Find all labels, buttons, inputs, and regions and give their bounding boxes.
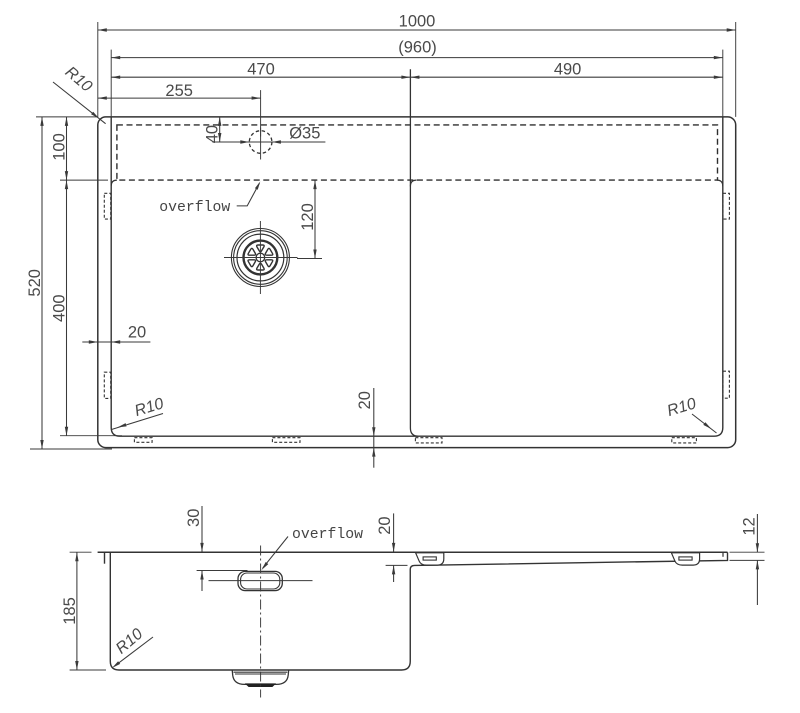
svg-text:400: 400 (51, 294, 69, 322)
svg-text:100: 100 (51, 133, 69, 161)
svg-text:12: 12 (741, 517, 759, 535)
svg-text:overflow: overflow (292, 527, 363, 543)
svg-text:490: 490 (554, 60, 582, 78)
svg-text:30: 30 (185, 509, 203, 527)
svg-text:20: 20 (128, 324, 146, 342)
svg-text:overflow: overflow (159, 200, 230, 216)
svg-text:470: 470 (247, 60, 275, 78)
svg-text:40: 40 (204, 125, 222, 143)
svg-text:20: 20 (356, 391, 374, 409)
svg-text:20: 20 (376, 516, 394, 534)
svg-text:255: 255 (165, 82, 193, 100)
svg-text:185: 185 (61, 597, 79, 625)
svg-text:1000: 1000 (399, 13, 436, 31)
svg-text:Ø35: Ø35 (289, 124, 320, 142)
svg-text:(960): (960) (398, 39, 437, 57)
svg-text:520: 520 (26, 269, 44, 297)
svg-text:120: 120 (299, 203, 317, 231)
